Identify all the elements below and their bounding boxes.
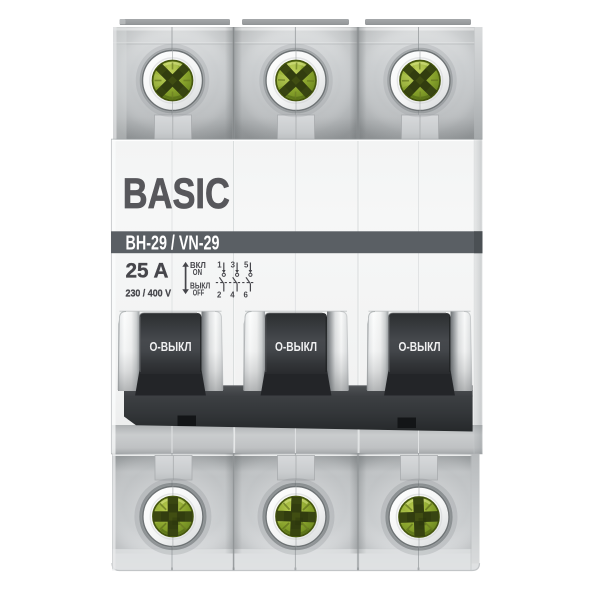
svg-text:ВН-29 / VN-29: ВН-29 / VN-29 [126,231,220,254]
svg-text:6: 6 [244,290,249,299]
svg-text:1: 1 [217,261,222,270]
svg-text:О-ВЫКЛ: О-ВЫКЛ [399,339,441,354]
svg-text:BASIC: BASIC [123,170,230,218]
svg-text:230 / 400 V: 230 / 400 V [126,289,172,300]
svg-text:OFF: OFF [193,288,204,297]
svg-text:О-ВЫКЛ: О-ВЫКЛ [275,339,317,354]
svg-text:О-ВЫКЛ: О-ВЫКЛ [150,339,192,354]
svg-text:4: 4 [230,290,235,299]
svg-text:25 A: 25 A [126,260,169,283]
svg-text:5: 5 [244,261,249,270]
svg-text:3: 3 [231,261,236,270]
svg-text:ON: ON [193,268,202,277]
svg-text:2: 2 [217,290,222,299]
